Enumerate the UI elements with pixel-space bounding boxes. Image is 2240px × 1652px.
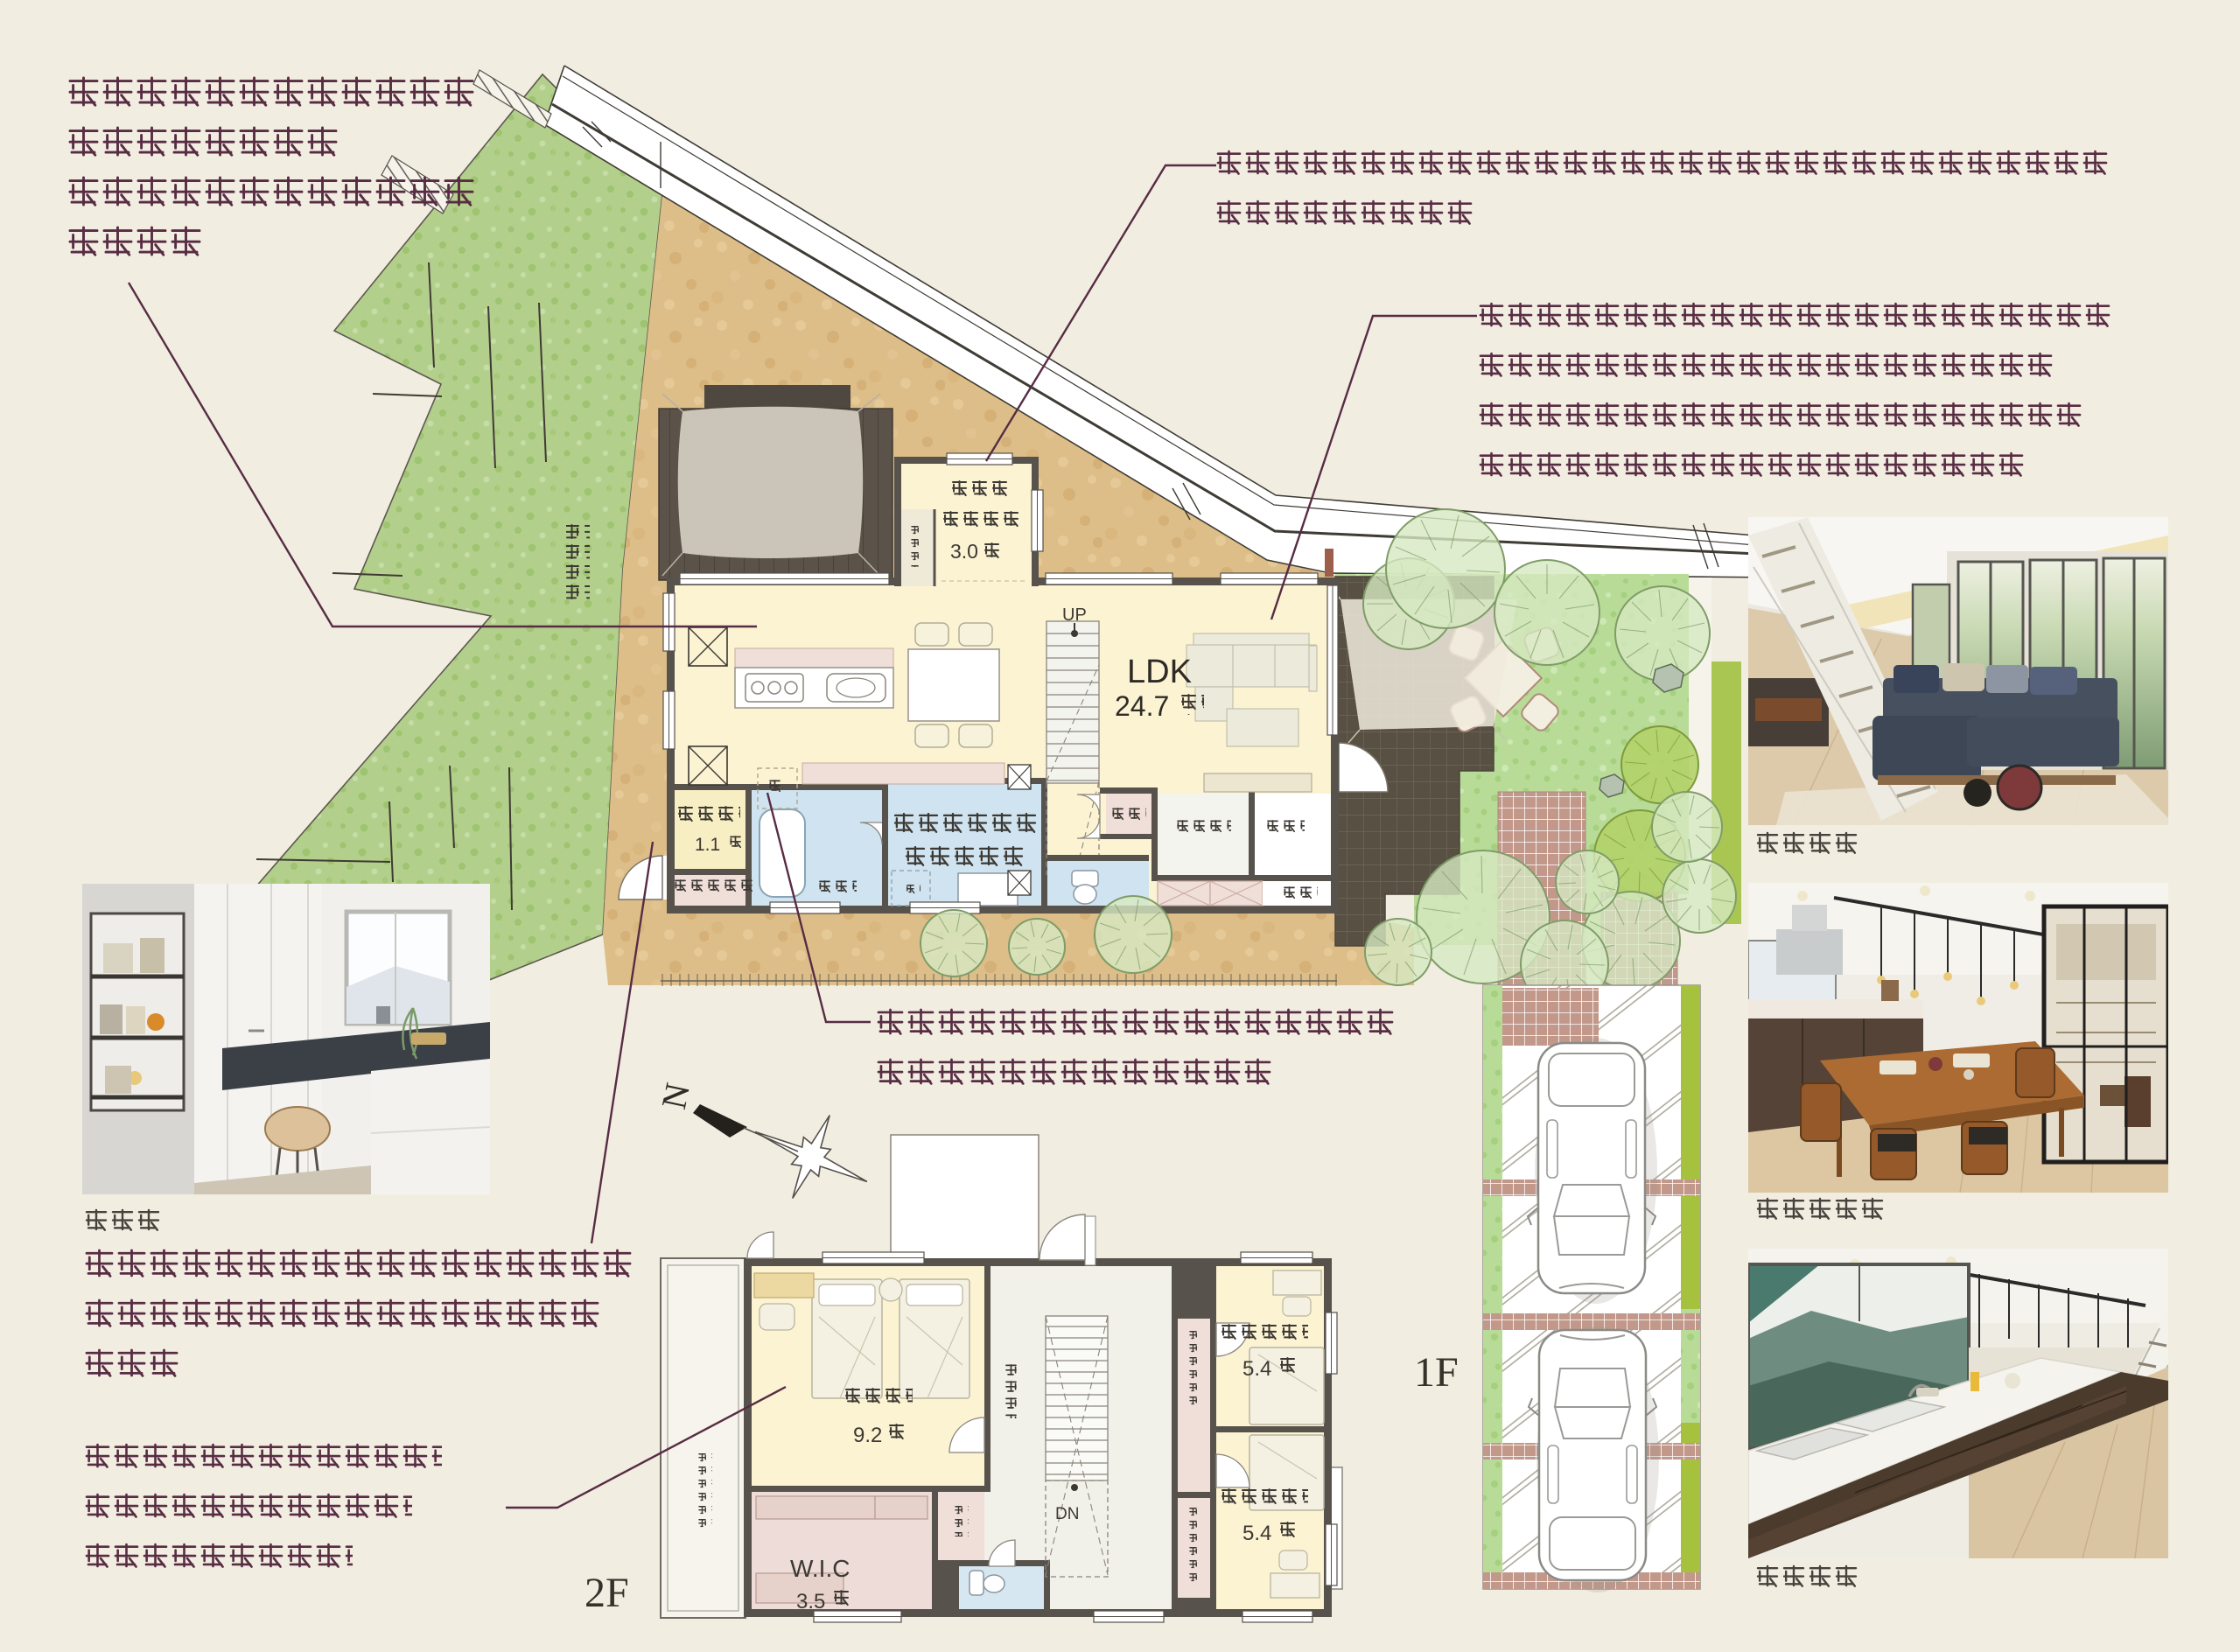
svg-text:2F: 2F (584, 1570, 629, 1616)
svg-text:9.2: 9.2 (853, 1424, 882, 1447)
svg-text:5.4: 5.4 (1242, 1522, 1271, 1545)
svg-text:1.1: 1.1 (695, 835, 720, 855)
svg-text:5.4: 5.4 (1242, 1357, 1271, 1381)
svg-text:UP: UP (1062, 605, 1087, 625)
svg-text:24.7: 24.7 (1115, 690, 1169, 722)
svg-text:3.5: 3.5 (796, 1590, 825, 1613)
svg-text:W.I.C: W.I.C (790, 1555, 850, 1582)
svg-text:1F: 1F (1414, 1349, 1459, 1396)
svg-text:LDK: LDK (1127, 654, 1192, 690)
svg-text:DN: DN (1055, 1505, 1079, 1523)
svg-text:3.0: 3.0 (950, 540, 978, 563)
